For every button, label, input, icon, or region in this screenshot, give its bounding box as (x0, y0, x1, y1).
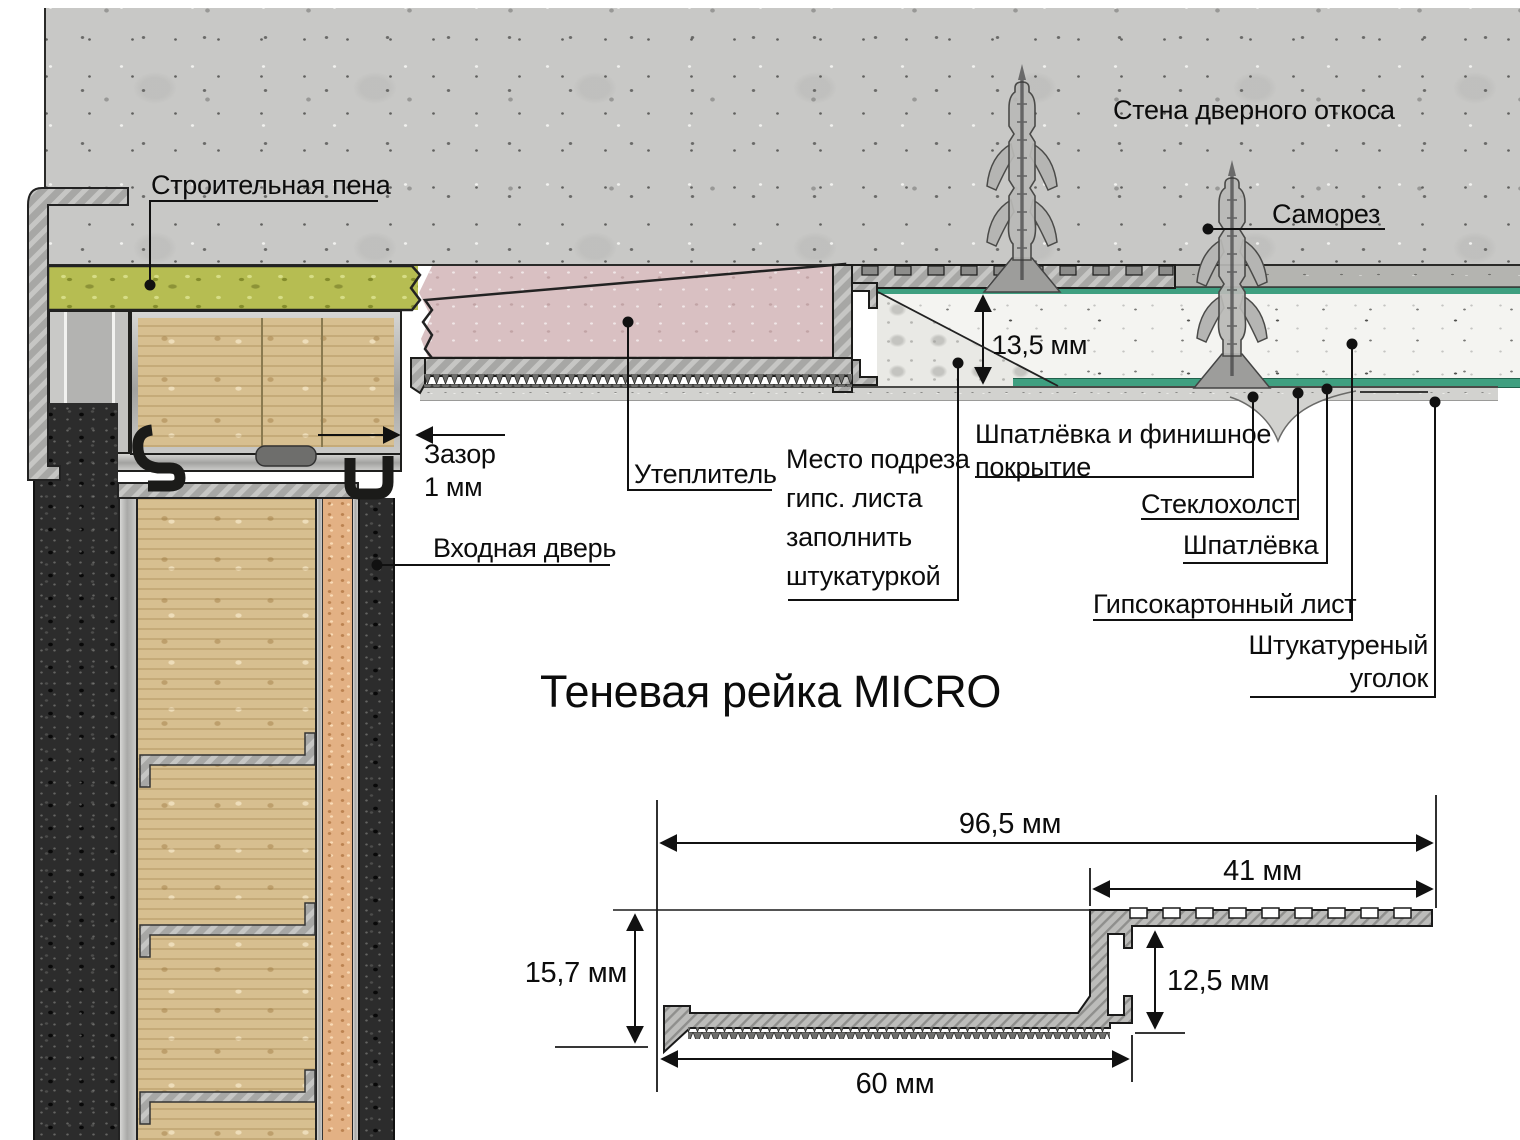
dim-recess-depth: 13,5 мм (992, 329, 1087, 362)
label-screw: Саморез (1272, 198, 1380, 231)
door-inner-panel (33, 403, 118, 1140)
door-metal-sheet-inner (118, 498, 138, 1140)
insulation-layer (419, 264, 845, 360)
plaster-base-band (1175, 266, 1520, 287)
diagram-canvas: Стена дверного откоса Саморез Строительн… (0, 0, 1520, 1140)
profile-drawing-title: Теневая рейка MICRO (540, 666, 1001, 718)
door-chipboard-layer (322, 498, 352, 1140)
door-top-cap (118, 483, 358, 498)
label-wall-slope: Стена дверного откоса (1113, 94, 1395, 127)
door-metal-sheet-mid (315, 498, 322, 1140)
label-gypsum-cut-note: Место подреза гипс. листа заполнить штук… (786, 440, 970, 597)
profile-cross-section (664, 910, 1432, 1052)
label-fiberglass: Стеклохолст (1141, 488, 1296, 521)
label-gap: Зазор 1 мм (424, 438, 496, 504)
profile-drawing-bottom-serration (688, 1027, 1110, 1039)
label-entry-door: Входная дверь (433, 532, 616, 565)
dim-channel-height: 12,5 мм (1167, 965, 1269, 998)
label-putty-and-finish: Шпатлёвка и финишное покрытие (975, 418, 1271, 484)
label-plastered-corner: Штукатуреный уголок (1150, 629, 1428, 695)
door-mineral-wool (138, 498, 315, 1140)
construction-foam-layer (48, 266, 418, 310)
label-putty: Шпатлёвка (1183, 529, 1318, 562)
frame-mineral-wool (138, 318, 394, 447)
door-outer-panel (358, 498, 395, 1140)
dim-profile-height: 15,7 мм (487, 957, 627, 990)
dim-bottom-flange-width: 60 мм (830, 1068, 960, 1101)
dim-top-flange-width: 41 мм (1190, 855, 1335, 888)
putty-finish-layer (420, 386, 1498, 401)
label-drywall-sheet: Гипсокартонный лист (1093, 588, 1356, 621)
dim-overall-width: 96,5 мм (930, 808, 1090, 841)
profile-drawing-top-serration (1130, 908, 1411, 918)
label-construction-foam: Строительная пена (151, 169, 391, 202)
label-insulation: Утеплитель (634, 458, 777, 491)
profile-top-serration (862, 266, 1173, 275)
